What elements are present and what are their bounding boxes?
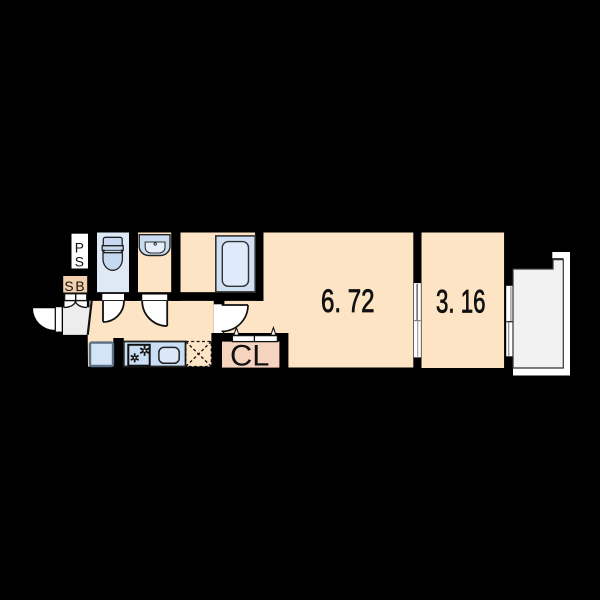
svg-text:P: P <box>75 240 84 255</box>
svg-text:S: S <box>75 254 84 269</box>
svg-text:6. 72: 6. 72 <box>321 283 375 319</box>
svg-text:SB: SB <box>64 279 86 294</box>
svg-text:3. 16: 3. 16 <box>436 283 486 319</box>
svg-text:CL: CL <box>230 340 270 373</box>
